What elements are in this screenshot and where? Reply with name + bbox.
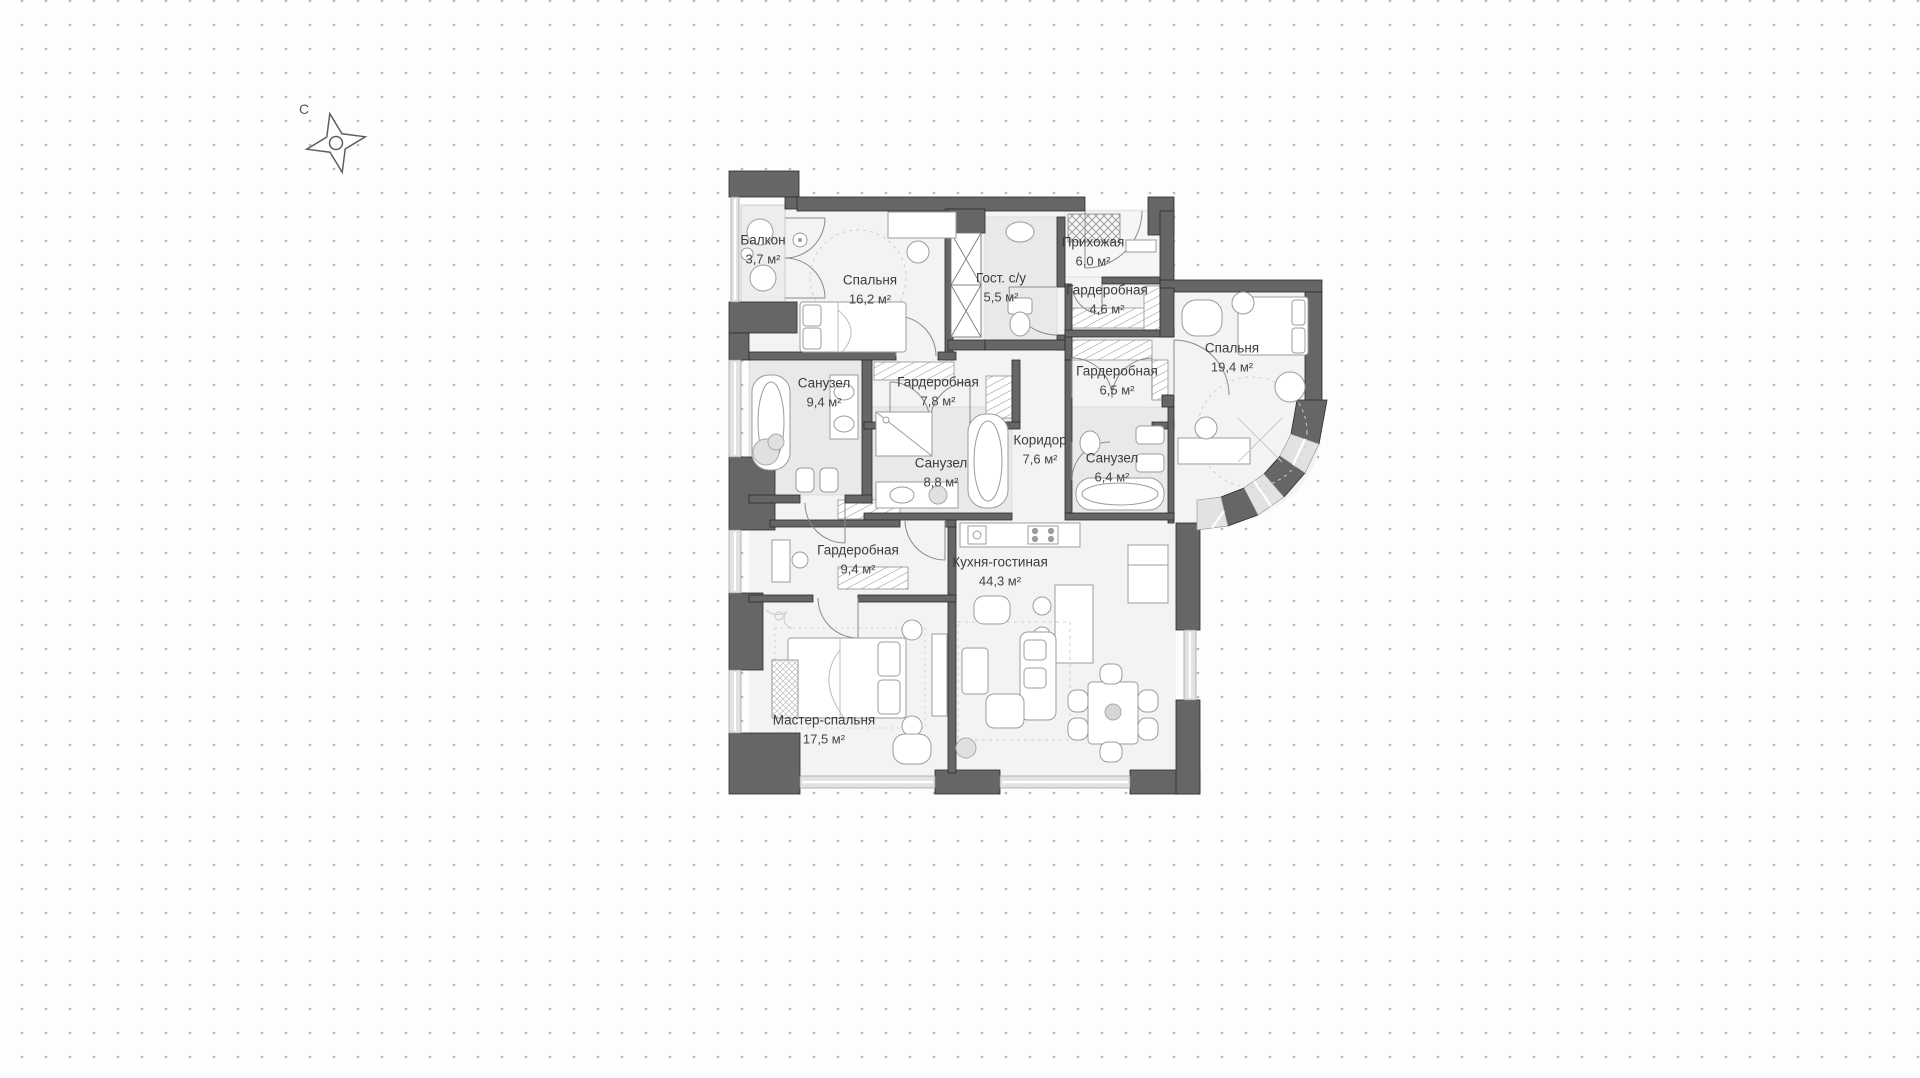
room-label-bedroom-16: Спальня 16,2 м² bbox=[843, 271, 897, 308]
compass-north-label: С bbox=[299, 101, 309, 117]
entry-console bbox=[1126, 240, 1156, 252]
room-label-wardrobe-46: Гардеробная 4,6 м² bbox=[1066, 281, 1148, 318]
compass-icon bbox=[307, 114, 366, 173]
canvas: { "compass": { "north_label": "С" }, "ro… bbox=[0, 0, 1920, 1078]
floor-plan bbox=[0, 0, 1920, 1078]
room-label-master-bedroom: Мастер-спальня 17,5 м² bbox=[773, 711, 875, 748]
room-label-guest-wc: Гост. с/у 5,5 м² bbox=[976, 269, 1026, 306]
room-label-wardrobe-78: Гардеробная 7,8 м² bbox=[897, 373, 979, 410]
room-label-entry-hall: Прихожая 6,0 м² bbox=[1062, 233, 1125, 270]
room-label-wardrobe-94: Гардеробная 9,4 м² bbox=[817, 541, 899, 578]
room-label-wardrobe-65: Гардеробная 6,5 м² bbox=[1076, 362, 1158, 399]
room-label-balcony: Балкон 3,7 м² bbox=[740, 231, 785, 268]
room-label-bedroom-19: Спальня 19,4 м² bbox=[1205, 339, 1259, 376]
room-label-bathroom-94: Санузел 9,4 м² bbox=[798, 374, 851, 411]
room-label-bathroom-64: Санузел 6,4 м² bbox=[1086, 449, 1139, 486]
room-label-kitchen-living: Кухня-гостиная 44,3 м² bbox=[952, 553, 1048, 590]
room-label-corridor: Коридор 7,6 м² bbox=[1013, 431, 1066, 468]
room-label-bathroom-88: Санузел 8,8 м² bbox=[915, 454, 968, 491]
